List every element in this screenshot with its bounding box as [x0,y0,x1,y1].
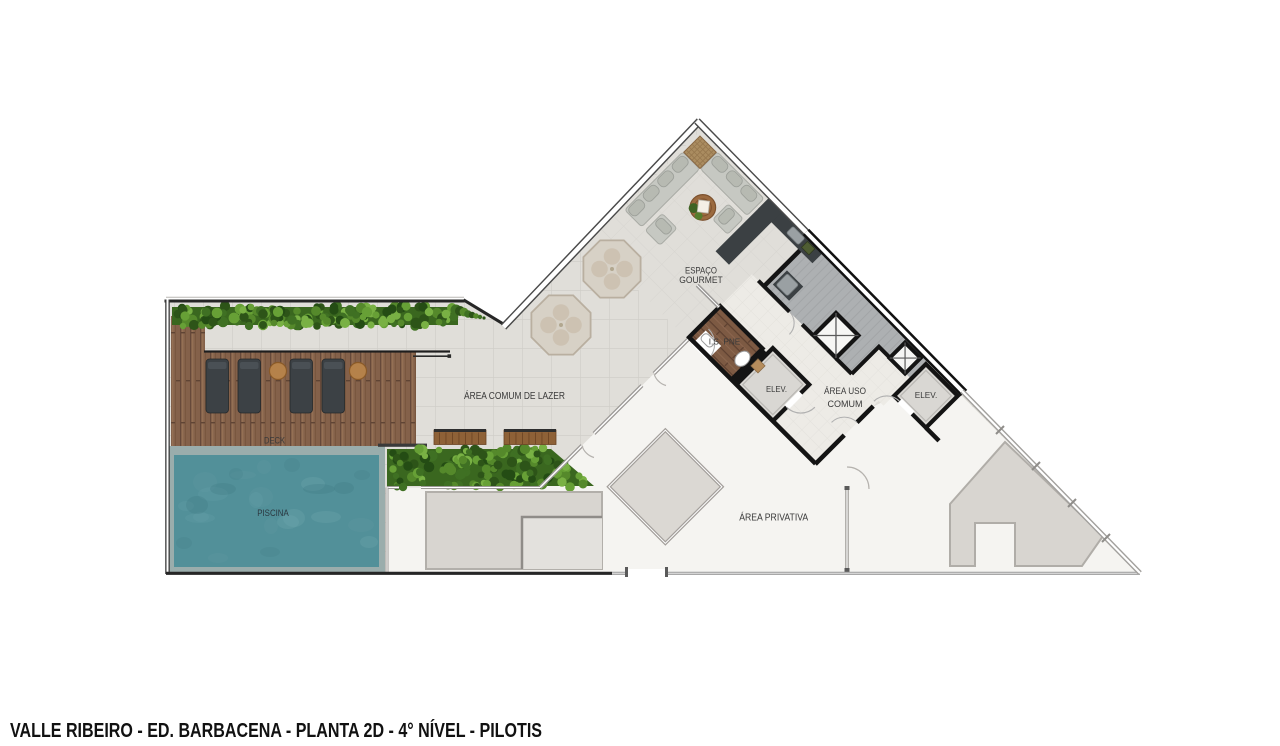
svg-text:ELEV.: ELEV. [915,390,938,400]
svg-text:DECK: DECK [264,436,286,446]
svg-text:I.S. PNE: I.S. PNE [709,337,741,347]
svg-text:ÁREA COMUM DE LAZER: ÁREA COMUM DE LAZER [464,389,565,402]
svg-text:ESPAÇO: ESPAÇO [685,266,717,276]
svg-text:ELEV.: ELEV. [766,384,787,394]
svg-text:GOURMET: GOURMET [679,275,723,285]
svg-text:ÁREA PRIVATIVA: ÁREA PRIVATIVA [739,511,808,524]
svg-text:COMUM: COMUM [828,399,863,409]
svg-text:VALLE RIBEIRO - ED. BARBACENA: VALLE RIBEIRO - ED. BARBACENA - PLANTA 2… [10,719,542,742]
svg-text:ÁREA USO: ÁREA USO [824,386,866,396]
svg-text:PISCINA: PISCINA [257,508,289,518]
